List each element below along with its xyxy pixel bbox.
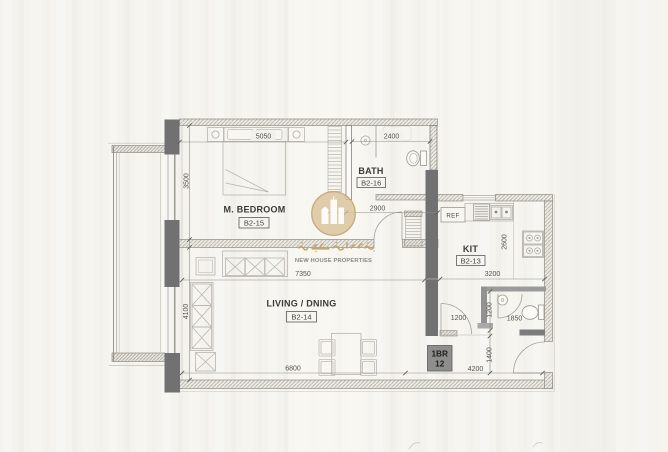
svg-text:LIVING / DNING: LIVING / DNING: [266, 299, 336, 309]
svg-text:2600: 2600: [502, 234, 509, 250]
svg-text:BATH: BATH: [358, 166, 383, 176]
svg-text:12: 12: [435, 360, 445, 369]
svg-text:4100: 4100: [183, 304, 190, 320]
svg-text:NEW HOUSE PROPERTIES: NEW HOUSE PROPERTIES: [295, 258, 372, 264]
svg-text:4200: 4200: [468, 366, 484, 373]
svg-text:5050: 5050: [256, 134, 272, 141]
svg-text:6800: 6800: [285, 366, 301, 373]
svg-text:3500: 3500: [184, 173, 191, 189]
svg-text:1200: 1200: [487, 302, 494, 318]
svg-text:1400: 1400: [487, 347, 494, 363]
svg-text:M. BEDROOM: M. BEDROOM: [224, 205, 286, 215]
svg-text:B2-14: B2-14: [291, 313, 311, 322]
svg-text:B2-13: B2-13: [461, 257, 481, 266]
svg-text:1850: 1850: [507, 316, 523, 323]
svg-text:7350: 7350: [295, 271, 311, 278]
svg-text:2400: 2400: [384, 134, 400, 141]
svg-text:1200: 1200: [451, 315, 467, 322]
svg-text:3200: 3200: [485, 271, 501, 278]
svg-text:KIT: KIT: [463, 244, 479, 254]
svg-text:B2-16: B2-16: [361, 179, 381, 188]
svg-text:REF: REF: [446, 213, 459, 220]
svg-text:B2-15: B2-15: [244, 219, 264, 228]
svg-text:2900: 2900: [370, 206, 386, 213]
svg-text:1BR: 1BR: [432, 350, 448, 359]
